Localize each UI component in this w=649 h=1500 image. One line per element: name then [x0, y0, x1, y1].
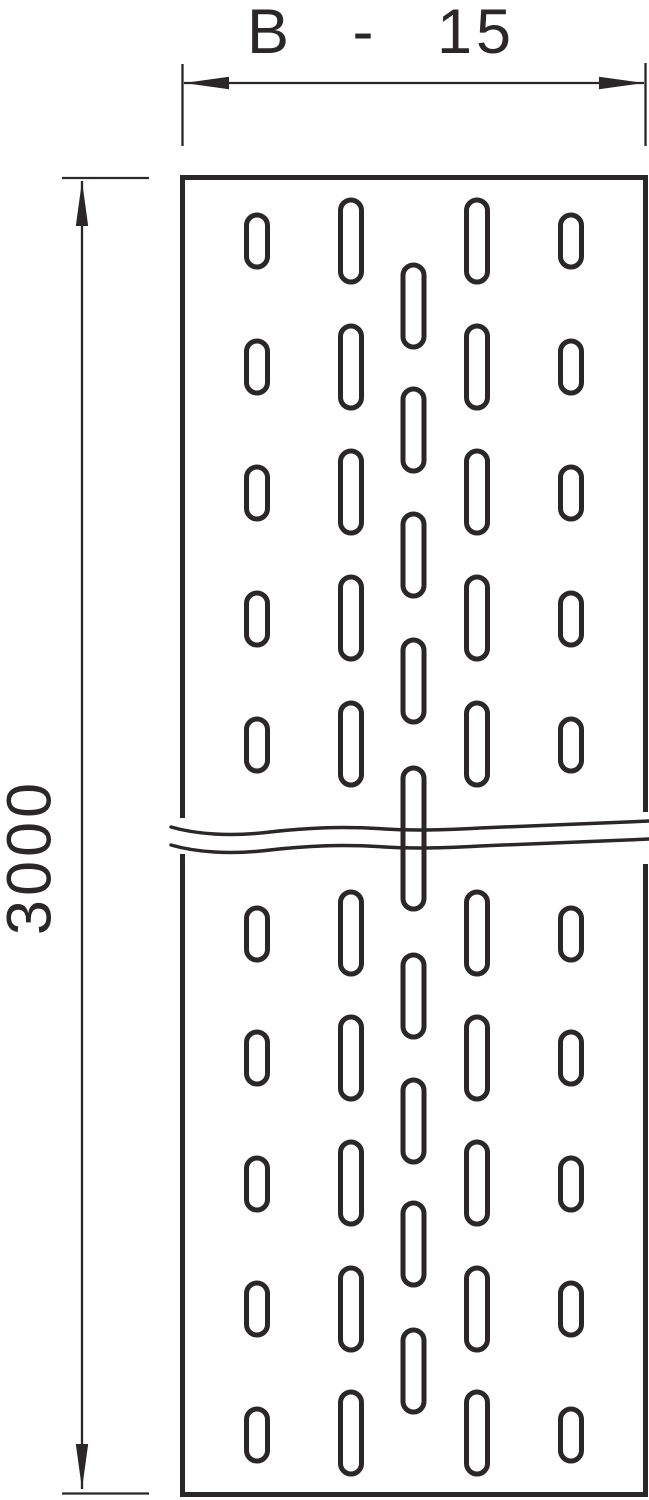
slot-center [403, 389, 424, 471]
slot-inner-right [467, 1268, 488, 1350]
perforated-plate-drawing: B - 15 3000 [0, 0, 649, 1500]
slot-inner-right [467, 1392, 488, 1474]
slot-center [403, 1330, 424, 1412]
length-dimension-label: 3000 [0, 779, 65, 935]
break-line-lower [171, 839, 649, 852]
slot-outer-right [561, 1158, 582, 1210]
slot-inner-left [341, 1142, 362, 1224]
length-arrow-bottom [76, 1444, 88, 1489]
slot-center [403, 265, 424, 347]
slot-pattern [247, 200, 582, 1474]
slot-inner-left [341, 892, 362, 974]
slot-outer-left [247, 1409, 268, 1461]
slot-inner-right [467, 703, 488, 785]
slot-center [403, 768, 424, 909]
slot-outer-right [561, 593, 582, 645]
slot-center [403, 1080, 424, 1162]
slot-outer-left [247, 1283, 268, 1335]
technical-drawing-canvas: B - 15 3000 [0, 0, 649, 1500]
slot-outer-right [561, 1409, 582, 1461]
slot-inner-left [341, 577, 362, 659]
slot-inner-left [341, 1017, 362, 1099]
width-arrow-right [599, 77, 644, 89]
slot-outer-left [247, 215, 268, 267]
slot-outer-left [247, 1032, 268, 1084]
slot-inner-right [467, 577, 488, 659]
slot-center [403, 1203, 424, 1285]
slot-outer-left [247, 908, 268, 960]
slot-center [403, 514, 424, 596]
slot-inner-right [467, 1017, 488, 1099]
slot-inner-left [341, 703, 362, 785]
slot-inner-right [467, 1142, 488, 1224]
slot-inner-left [341, 451, 362, 533]
slot-inner-right [467, 451, 488, 533]
slot-outer-left [247, 341, 268, 393]
slot-outer-left [247, 467, 268, 519]
slot-inner-left [341, 1268, 362, 1350]
slot-inner-right [467, 200, 488, 282]
plate [171, 178, 649, 1495]
width-dimension: B - 15 [183, 0, 646, 146]
width-arrow-left [184, 77, 229, 89]
slot-inner-right [467, 326, 488, 408]
slot-center [403, 640, 424, 722]
slot-outer-right [561, 467, 582, 519]
slot-outer-left [247, 593, 268, 645]
length-dimension: 3000 [0, 178, 149, 1494]
slot-inner-right [467, 892, 488, 974]
slot-inner-left [341, 326, 362, 408]
slot-outer-right [561, 719, 582, 771]
length-arrow-top [76, 181, 88, 226]
break-line-upper [171, 821, 649, 834]
plate-outline [183, 178, 646, 1495]
slot-inner-left [341, 200, 362, 282]
slot-outer-right [561, 908, 582, 960]
width-dimension-label: B - 15 [247, 0, 515, 67]
slot-center [403, 955, 424, 1037]
slot-outer-right [561, 215, 582, 267]
slot-outer-left [247, 719, 268, 771]
slot-outer-right [561, 1283, 582, 1335]
slot-outer-left [247, 1158, 268, 1210]
slot-inner-left [341, 1392, 362, 1474]
slot-outer-right [561, 341, 582, 393]
slot-outer-right [561, 1032, 582, 1084]
